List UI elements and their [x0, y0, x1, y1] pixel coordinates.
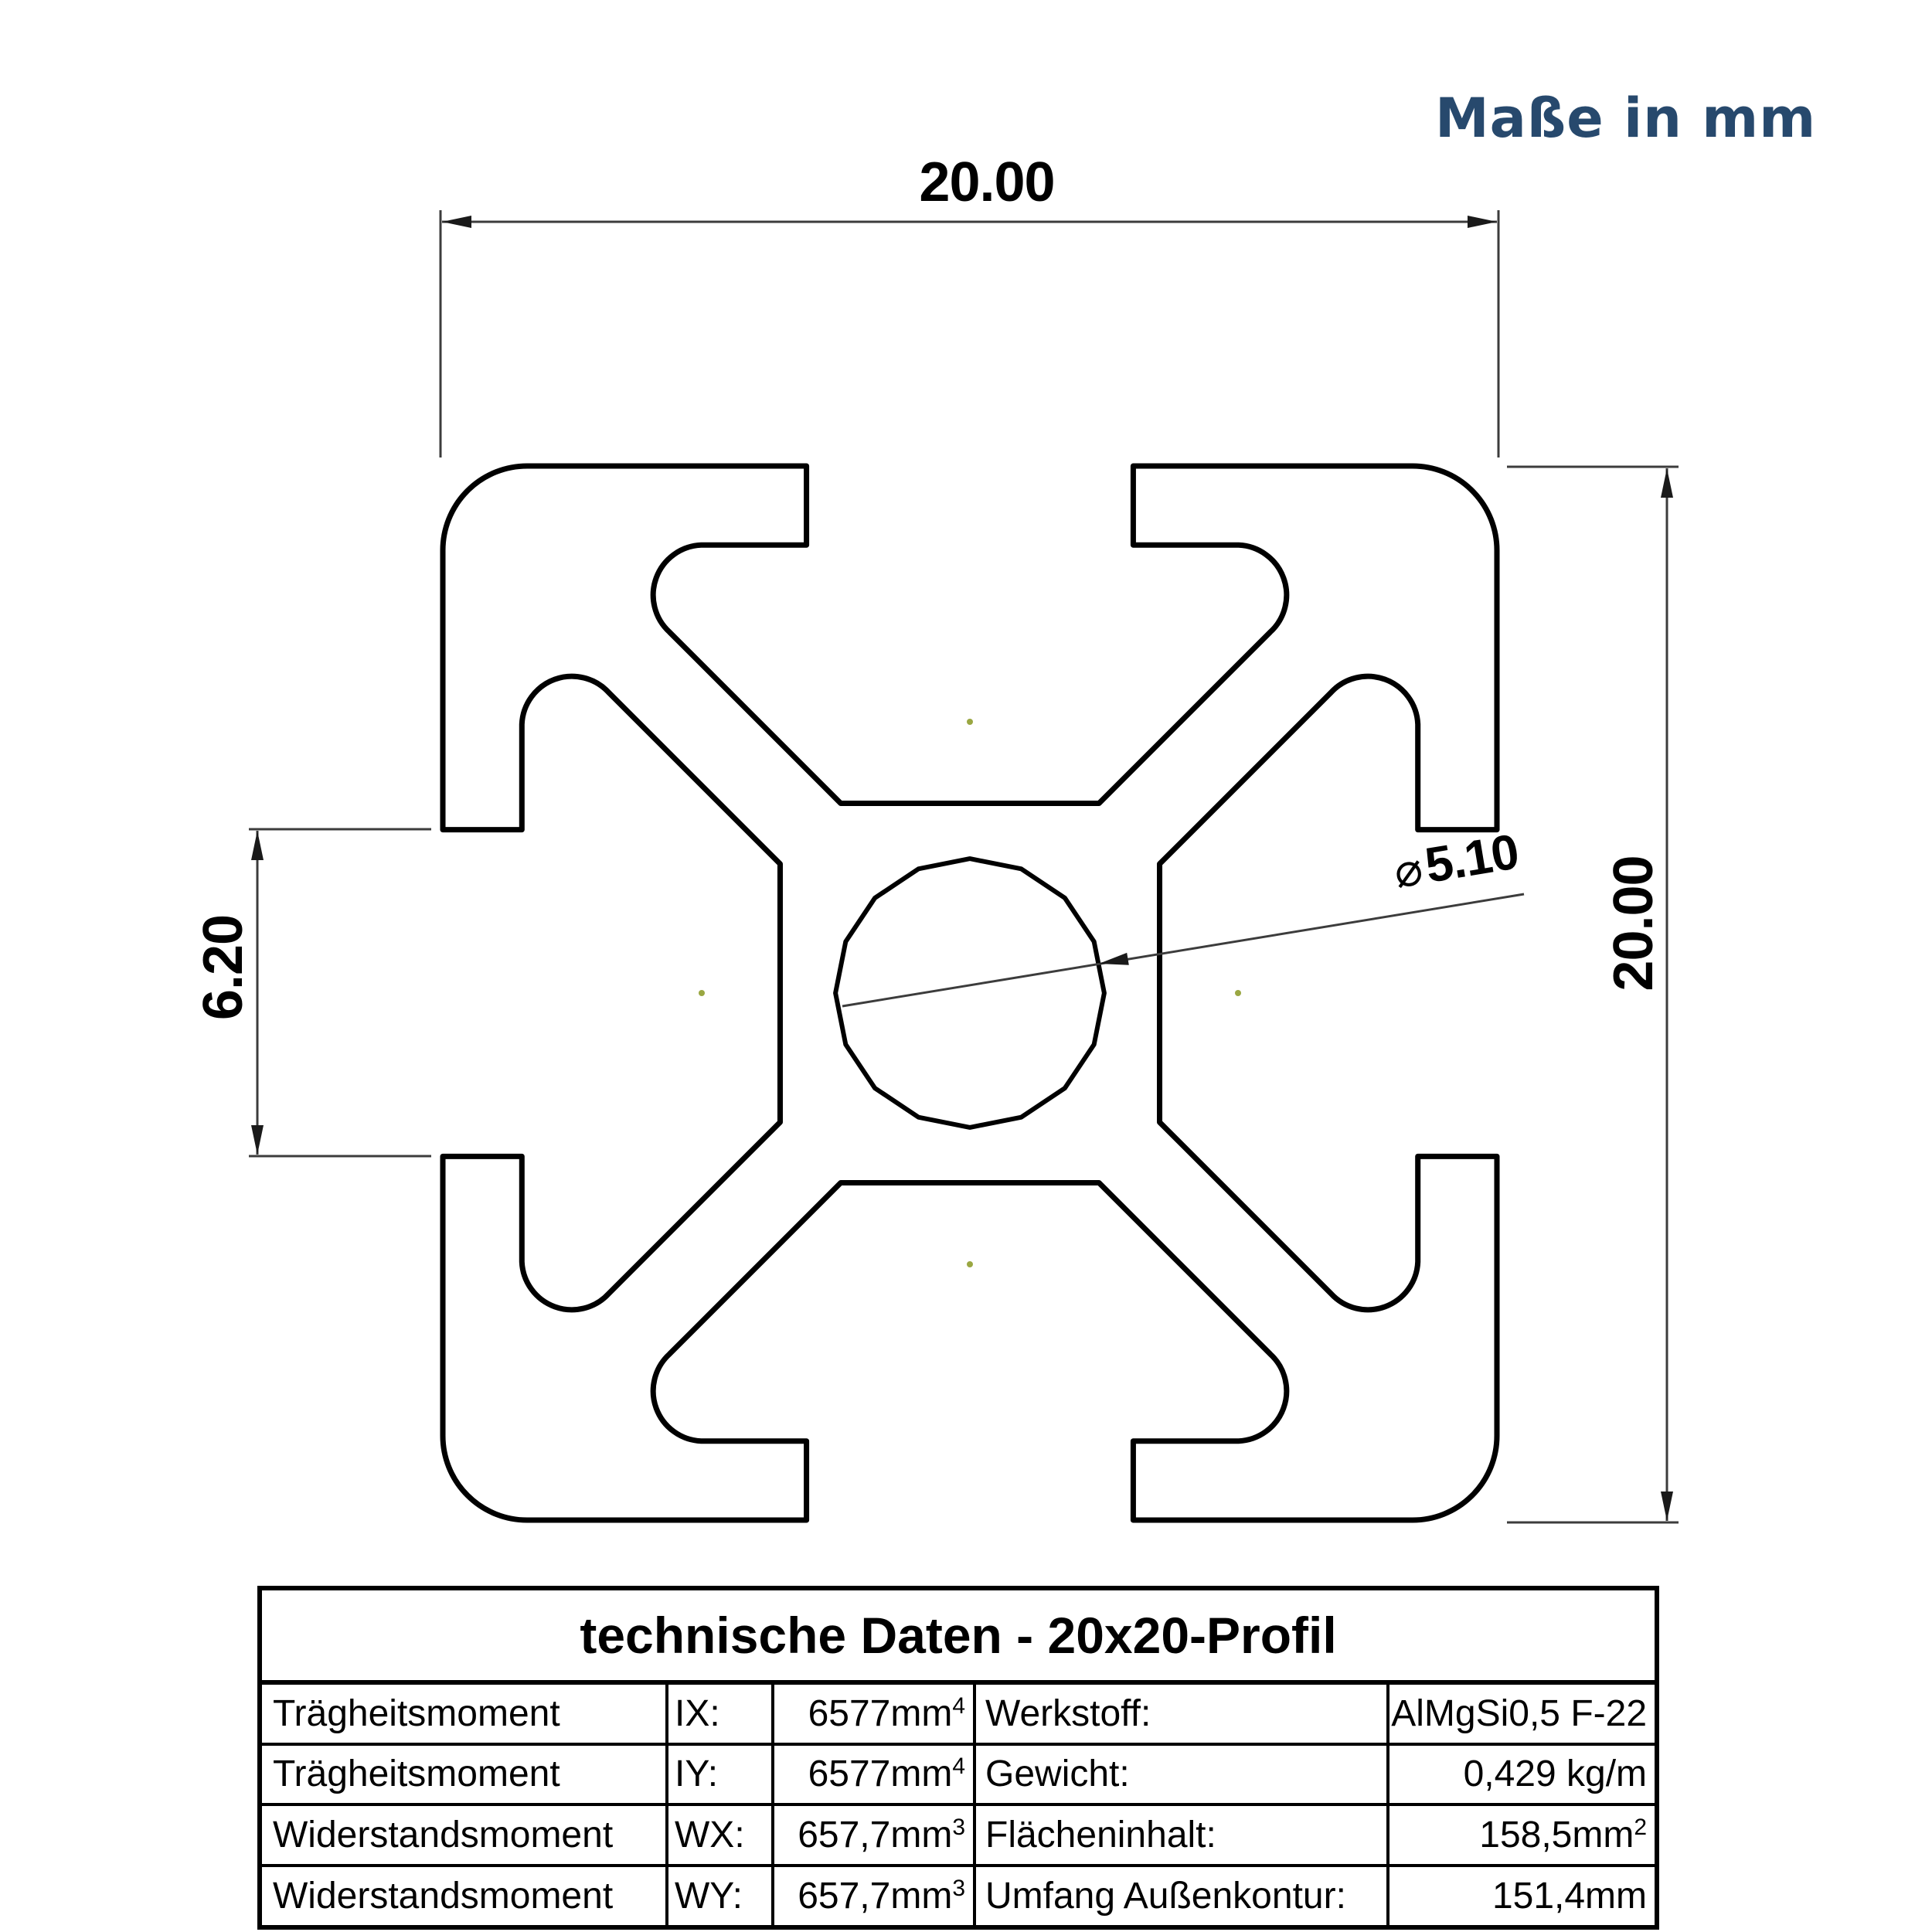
table-row: Trägheitsmoment IX: 6577mm4 Werkstoff: A…	[260, 1682, 1657, 1744]
arrowhead-up-icon	[1661, 468, 1673, 498]
row-value-2: 151,4mm	[1388, 1866, 1657, 1927]
row-label-2: Flächeninhalt:	[975, 1804, 1388, 1866]
row-symbol: IY:	[667, 1744, 773, 1805]
dimension-width-value: 20.00	[919, 151, 1054, 214]
row-symbol: IX:	[667, 1682, 773, 1744]
leader-hole-diameter	[842, 894, 1524, 1006]
row-label: Widerstandsmoment	[260, 1804, 667, 1866]
dimension-slot-value: 6.20	[192, 915, 255, 1020]
row-label-2: Gewicht:	[975, 1744, 1388, 1805]
row-label-2: Werkstoff:	[975, 1682, 1388, 1744]
profile-outline	[443, 466, 1497, 1520]
row-value: 657,7mm3	[773, 1804, 975, 1866]
dimension-slot	[249, 829, 431, 1156]
table-row: Widerstandsmoment WX: 657,7mm3 Flächenin…	[260, 1804, 1657, 1866]
row-label: Widerstandsmoment	[260, 1866, 667, 1927]
units-note: Maße in mm	[1435, 87, 1816, 150]
row-symbol: WY:	[667, 1866, 773, 1927]
row-label-2: Umfang Außenkontur:	[975, 1866, 1388, 1927]
center-hole	[835, 859, 1104, 1128]
table-title: technische Daten - 20x20-Profil	[260, 1588, 1657, 1682]
arrowhead-right-icon	[1468, 216, 1497, 228]
row-label: Trägheitsmoment	[260, 1744, 667, 1805]
dimension-height	[1507, 467, 1679, 1522]
arrowhead-up-icon	[251, 831, 264, 860]
arrowhead-left-icon	[442, 216, 471, 228]
row-label: Trägheitsmoment	[260, 1682, 667, 1744]
dimension-height-value: 20.00	[1602, 855, 1665, 991]
table-row: Widerstandsmoment WY: 657,7mm3 Umfang Au…	[260, 1866, 1657, 1927]
row-value: 6577mm4	[773, 1682, 975, 1744]
row-value: 657,7mm3	[773, 1866, 975, 1927]
row-value-2: AlMgSi0,5 F-22	[1388, 1682, 1657, 1744]
arrowhead-down-icon	[251, 1125, 264, 1155]
drawing-canvas: Maße in mm 20.00 20.00 6.20 ⌀5.10 techni…	[0, 0, 1932, 1932]
row-symbol: WX:	[667, 1804, 773, 1866]
table-title-row: technische Daten - 20x20-Profil	[260, 1588, 1657, 1682]
row-value-2: 0,429 kg/m	[1388, 1744, 1657, 1805]
row-value: 6577mm4	[773, 1744, 975, 1805]
row-value-2: 158,5mm2	[1388, 1804, 1657, 1866]
arrowhead-leader-icon	[1099, 953, 1129, 965]
dimension-width	[440, 210, 1498, 457]
table-row: Trägheitsmoment IY: 6577mm4 Gewicht: 0,4…	[260, 1744, 1657, 1805]
arrowhead-down-icon	[1661, 1492, 1673, 1521]
technical-data-table: technische Daten - 20x20-Profil Trägheit…	[257, 1586, 1659, 1930]
